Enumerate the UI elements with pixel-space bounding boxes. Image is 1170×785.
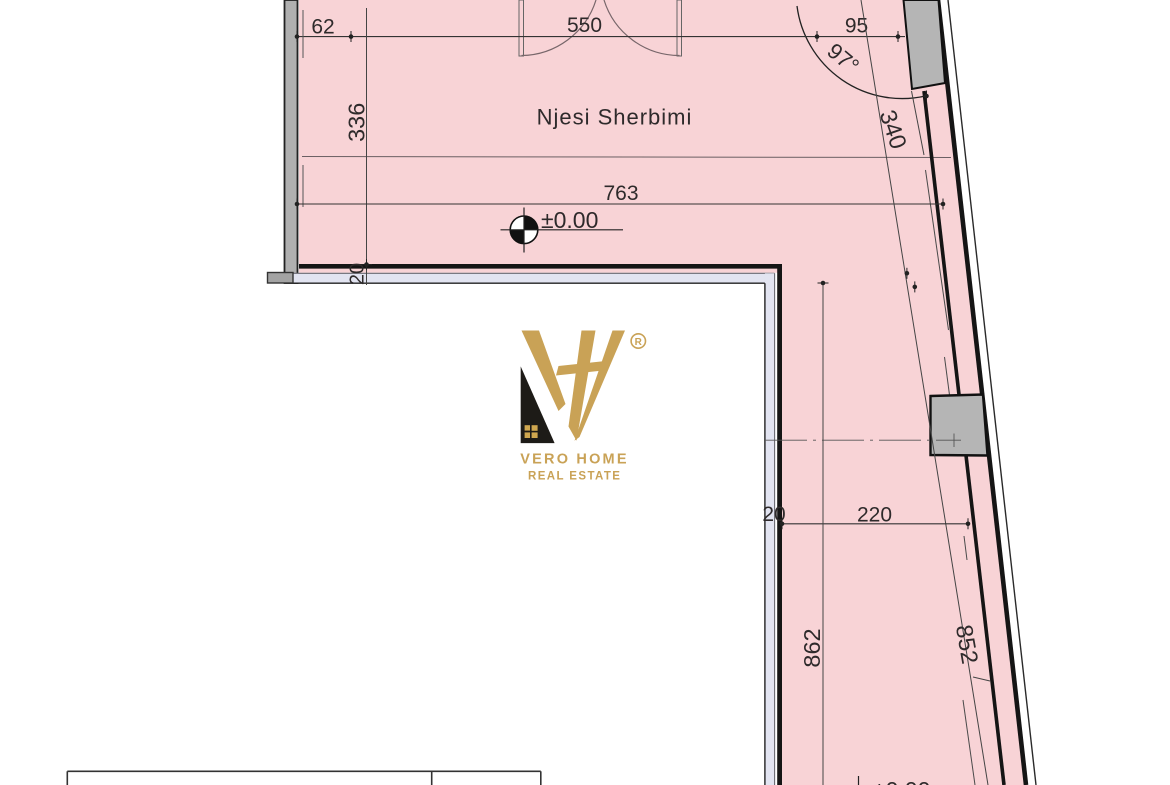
svg-text:763: 763 <box>603 182 638 205</box>
svg-text:Njesi Sherbimi: Njesi Sherbimi <box>537 105 693 130</box>
svg-text:220: 220 <box>857 504 892 527</box>
svg-text:550: 550 <box>567 14 602 37</box>
svg-text:336: 336 <box>344 103 370 142</box>
svg-text:±0.00: ±0.00 <box>873 777 930 785</box>
svg-text:VERO HOME: VERO HOME <box>520 452 628 468</box>
svg-text:862: 862 <box>799 628 825 667</box>
svg-text:±0.00: ±0.00 <box>541 207 598 233</box>
svg-text:R: R <box>635 337 643 348</box>
svg-text:62: 62 <box>311 16 334 39</box>
svg-text:20: 20 <box>347 263 369 285</box>
svg-text:REAL ESTATE: REAL ESTATE <box>528 471 621 483</box>
svg-text:95: 95 <box>845 15 868 38</box>
